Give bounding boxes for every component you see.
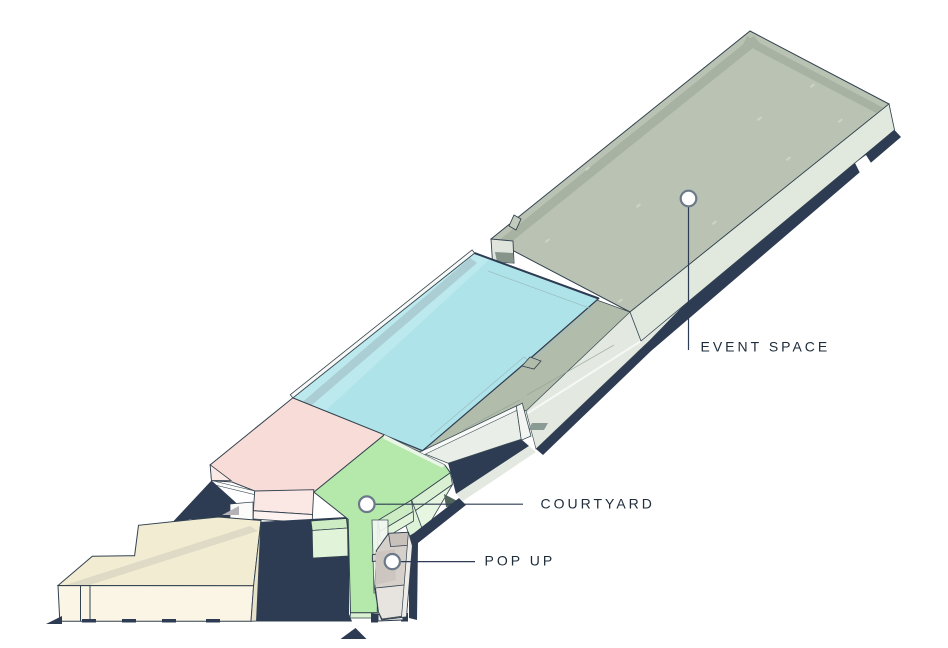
svg-text:COURTYARD: COURTYARD (541, 496, 655, 512)
svg-text:EVENT SPACE: EVENT SPACE (701, 339, 831, 355)
svg-text:POP UP: POP UP (485, 553, 556, 569)
